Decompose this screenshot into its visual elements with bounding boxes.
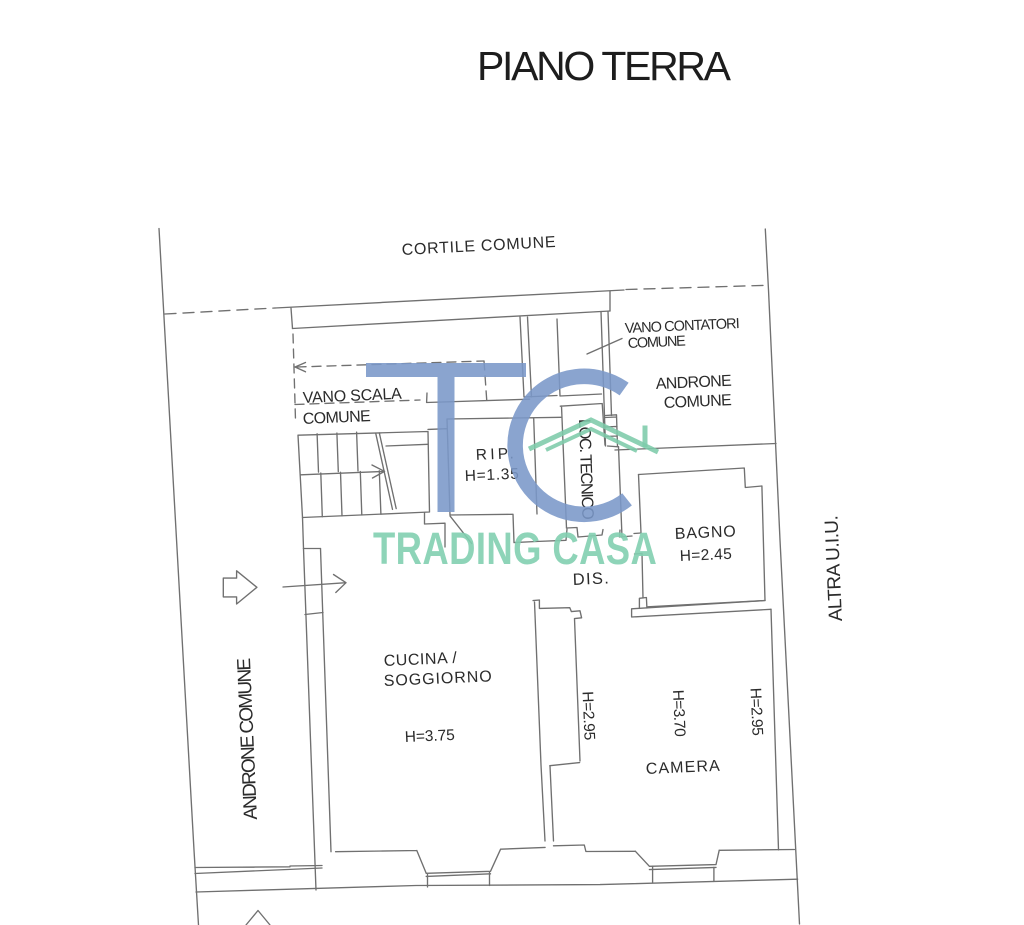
svg-text:CAMERA: CAMERA — [645, 758, 720, 778]
svg-text:H=2.95: H=2.95 — [747, 687, 766, 736]
svg-text:ANDRONE: ANDRONE — [655, 373, 732, 393]
svg-text:COMUNE: COMUNE — [627, 333, 686, 352]
svg-text:COMUNE: COMUNE — [302, 408, 371, 428]
svg-text:TRADING CASA: TRADING CASA — [373, 523, 657, 574]
svg-text:COMUNE: COMUNE — [663, 392, 732, 412]
svg-text:H=3.70: H=3.70 — [669, 689, 688, 737]
svg-text:H=2.45: H=2.45 — [679, 546, 732, 565]
svg-text:BAGNO: BAGNO — [674, 523, 736, 543]
svg-text:PIANO TERRA: PIANO TERRA — [477, 43, 732, 89]
svg-text:CUCINA /: CUCINA / — [383, 650, 457, 670]
svg-text:H=2.95: H=2.95 — [579, 691, 598, 741]
svg-text:H=3.75: H=3.75 — [404, 727, 455, 746]
